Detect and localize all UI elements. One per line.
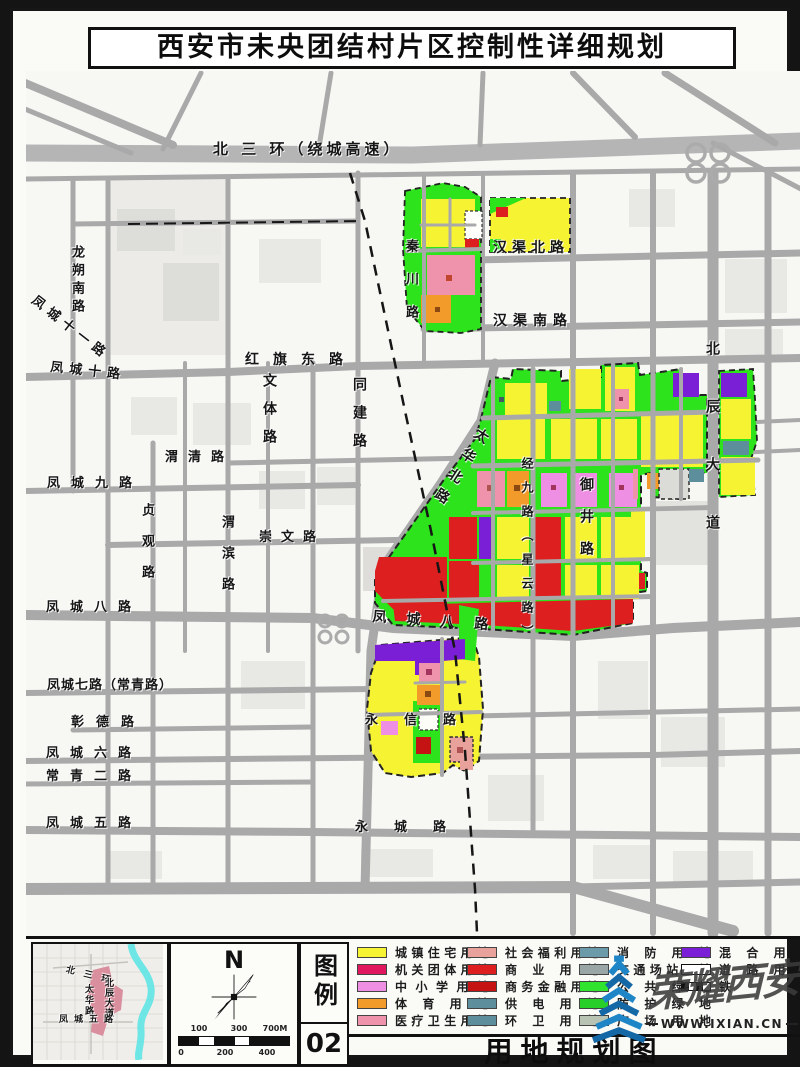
legend-label: 铁路	[719, 981, 800, 993]
legend-item: 道路用地	[681, 961, 800, 978]
legend-swatch	[681, 947, 711, 958]
legend-swatch	[681, 982, 711, 991]
legend-item: 铁路	[681, 978, 800, 995]
legend-label: 广场用地	[617, 1015, 711, 1027]
inset-location-map: 北 三 环太华路北辰大道凤城五路	[31, 942, 169, 1066]
legend-swatch	[357, 947, 387, 958]
road-label: 凤城五路	[59, 1016, 119, 1025]
legend-swatch	[579, 981, 609, 992]
scale-bar-segments	[178, 1036, 290, 1046]
map-area	[26, 71, 800, 936]
legend-swatch	[467, 964, 497, 975]
sheet-inner-frame: 西安市未央团结村片区控制性详细规划	[10, 8, 790, 1058]
legend-swatch	[681, 964, 711, 975]
scale-bar: 100 300 700M 0 200 400	[176, 1024, 292, 1062]
scale-tick: 200	[212, 1048, 238, 1057]
legend-swatch	[579, 1015, 609, 1026]
legend-swatch	[467, 998, 497, 1009]
plan-sheet: 西安市未央团结村片区控制性详细规划	[0, 0, 800, 1067]
legend-swatch	[579, 964, 609, 975]
sheet-number: 02	[301, 1022, 347, 1064]
legend-label: 防护绿地	[617, 998, 711, 1010]
page-title-text: 西安市未央团结村片区控制性详细规划	[157, 32, 667, 63]
road-label: 北辰大道	[103, 978, 112, 1018]
scale-tick: 400	[254, 1048, 280, 1057]
scale-tick: 100	[186, 1024, 212, 1033]
legend-swatch	[467, 1015, 497, 1026]
inset-map-labels: 北 三 环太华路北辰大道凤城五路	[33, 944, 163, 1060]
legend-item: 混合用地	[681, 944, 800, 961]
scale-tick: 700M	[262, 1024, 288, 1033]
legend-swatch	[467, 981, 497, 992]
legend-swatch	[357, 1015, 387, 1026]
legend-swatch	[579, 998, 609, 1009]
legend-swatch	[467, 947, 497, 958]
legend-swatch	[357, 981, 387, 992]
north-scale-panel: N 100 300 700M	[169, 942, 299, 1066]
map-sheet-title-text: 用地规划图	[484, 1035, 664, 1067]
legend-item: 广场用地	[579, 1012, 711, 1029]
scale-tick: 0	[168, 1048, 194, 1057]
map-sheet-title: 用地规划图	[349, 1034, 800, 1067]
legend-column: 混合用地道路用地铁路	[681, 944, 800, 995]
legend-item: 防护绿地	[579, 995, 711, 1012]
legend-swatch	[579, 947, 609, 958]
legend-swatch	[357, 998, 387, 1009]
page-title: 西安市未央团结村片区控制性详细规划	[88, 27, 736, 69]
legend-swatch	[357, 964, 387, 975]
road-label: 太华路	[83, 984, 92, 1017]
legend-title-panel: 图例 02	[299, 942, 349, 1066]
legend-title: 图例	[301, 944, 347, 1020]
map-graphic	[26, 71, 800, 936]
scale-tick: 300	[226, 1024, 252, 1033]
legend-label: 混合用地	[719, 947, 800, 959]
bottom-divider	[26, 936, 800, 939]
legend-items-area: 城镇住宅用地机关团体用地中小学用地体育用地医疗卫生用地社会福利用地商业用地商务金…	[349, 940, 800, 1031]
legend-label: 道路用地	[719, 964, 800, 976]
compass-rose-icon	[207, 970, 261, 1024]
